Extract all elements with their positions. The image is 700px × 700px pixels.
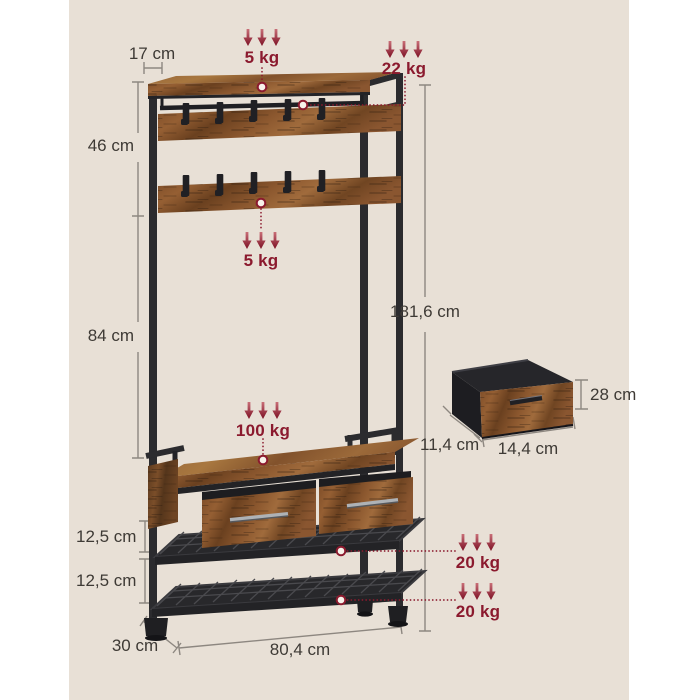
anchor-dot-hooks [257, 199, 266, 208]
load-rod-label: 22 kg [375, 60, 433, 78]
anchor-dot-bench [259, 456, 268, 465]
dim-80cm-label: 80,4 cm [258, 641, 342, 659]
anchor-dot-top-shelf [258, 83, 267, 92]
dim-gap-lower-label: 12,5 cm [76, 572, 136, 590]
drawer-depth-label: 11,4 cm [420, 436, 480, 454]
load-mesh-upper-label: 20 kg [448, 554, 508, 572]
anchor-dot-mesh-upper [337, 547, 346, 556]
drawer-height-label: 28 cm [590, 386, 640, 404]
anchor-dot-rod [299, 101, 308, 110]
anchor-dot-mesh-lower [337, 596, 346, 605]
dim-28cm-line [575, 380, 588, 409]
scene-drawing [0, 0, 700, 700]
drawer-2 [319, 477, 413, 534]
load-arrows-mesh-lower-icon [458, 583, 495, 600]
load-top-shelf-label: 5 kg [238, 49, 286, 67]
dim-shelf-depth-line [144, 62, 162, 74]
dim-total-height-line [419, 85, 431, 631]
dim-84cm-label: 84 cm [78, 327, 134, 345]
dim-gap-upper-label: 12,5 cm [76, 528, 136, 546]
drawer-width-label: 14,4 cm [494, 440, 562, 458]
dim-30cm-label: 30 cm [106, 637, 164, 655]
front-left-post [149, 84, 157, 618]
dim-total-height-label: 181,6 cm [388, 303, 462, 321]
load-bench-label: 100 kg [229, 422, 297, 440]
drawer-detail-drawing [452, 360, 573, 438]
load-arrows-hooks-icon [242, 232, 279, 249]
load-arrows-mesh-upper-icon [458, 534, 495, 551]
load-hooks-label: 5 kg [237, 252, 285, 270]
dim-shelf-depth-label: 17 cm [122, 45, 182, 63]
dim-46cm-label: 46 cm [78, 137, 134, 155]
armrest-right-bar [345, 430, 399, 439]
load-mesh-lower-label: 20 kg [448, 603, 508, 621]
product-dimension-diagram: 17 cm 46 cm 84 cm 181,6 cm 12,5 cm 12,5 … [0, 0, 700, 700]
load-arrows-rod-icon [385, 41, 422, 58]
load-arrows-top-shelf-icon [243, 29, 280, 46]
top-shelf [148, 72, 398, 99]
coat-rack-drawing [144, 72, 425, 641]
mesh-shelf-lower [152, 569, 425, 617]
load-arrows-bench-icon [244, 402, 281, 419]
